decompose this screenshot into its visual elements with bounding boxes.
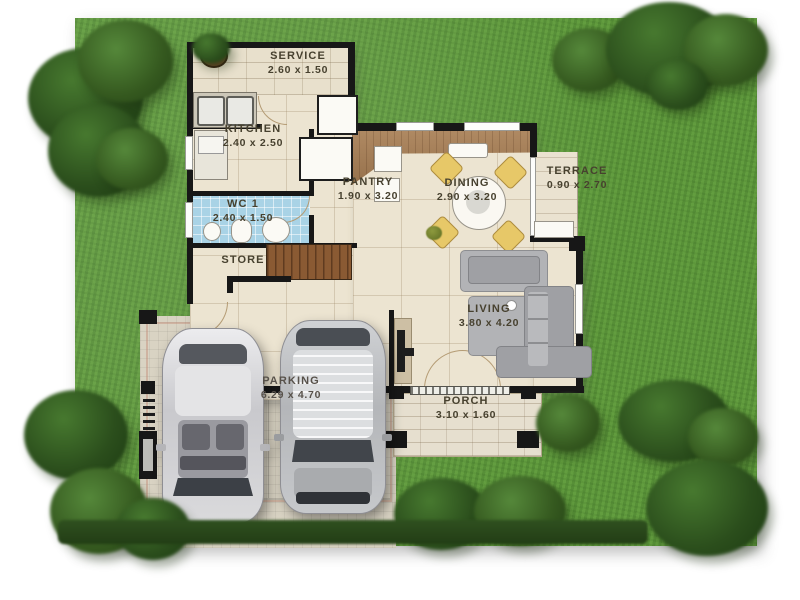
label-parking: PARKING6.29 x 4.70	[261, 375, 321, 402]
gate-column-c-panel	[143, 439, 153, 471]
potted-plant	[192, 33, 230, 63]
room-dims: 2.60 x 1.50	[268, 64, 328, 77]
tree	[96, 128, 168, 190]
porch-sliding-door	[410, 386, 510, 395]
gate-column-a	[139, 310, 157, 324]
car-mirror-left	[156, 444, 166, 451]
label-dining: DINING2.90 x 3.20	[437, 177, 497, 204]
window-kitchen	[185, 136, 193, 170]
label-terrace: TERRACE0.90 x 2.70	[547, 165, 608, 192]
tree	[648, 60, 708, 110]
tv-screen	[397, 330, 405, 372]
tree	[24, 390, 128, 480]
label-living: LIVING3.80 x 4.20	[459, 303, 519, 330]
wall-dining-terrace	[530, 123, 537, 157]
label-pantry: PANTRY1.90 x 3.20	[338, 176, 398, 203]
tv-mount	[405, 348, 414, 356]
room-name: PANTRY	[343, 176, 394, 188]
room-dims: 0.90 x 2.70	[547, 179, 608, 192]
car-dashboard	[180, 456, 246, 470]
label-service: SERVICE2.60 x 1.50	[268, 50, 328, 77]
label-kitchen: KITCHEN2.40 x 2.50	[223, 123, 283, 150]
suv-mirror-right	[382, 434, 392, 441]
floor-plan-image: SERVICE2.60 x 1.50 KITCHEN2.40 x 2.50 PA…	[0, 0, 800, 600]
room-name: TERRACE	[547, 165, 608, 177]
room-name: PORCH	[443, 395, 488, 407]
silver-car	[162, 328, 264, 524]
suv-windshield	[292, 440, 374, 462]
room-dims: 2.40 x 1.50	[213, 212, 273, 225]
room-dims: 1.90 x 3.20	[338, 190, 398, 203]
hedge	[58, 520, 648, 544]
car-windshield	[173, 478, 253, 496]
gate-slats	[143, 398, 155, 430]
pantry-shelf-1	[374, 146, 402, 172]
wall-living-right-a	[576, 242, 583, 286]
suv-grille	[296, 492, 370, 504]
room-name: SERVICE	[270, 50, 326, 62]
terrace-bench	[534, 221, 574, 238]
window-wc	[185, 202, 193, 238]
room-dims: 3.80 x 4.20	[459, 317, 519, 330]
cabinet-box-1	[317, 95, 358, 135]
room-dims: 6.29 x 4.70	[261, 389, 321, 402]
porch-column-br	[517, 431, 539, 448]
porch-column-tr	[521, 388, 536, 399]
staircase	[266, 244, 352, 280]
label-wc1: WC 12.40 x 1.50	[213, 198, 273, 225]
room-name: PARKING	[262, 375, 320, 387]
cabinet-box-2	[299, 137, 353, 181]
room-name: LIVING	[467, 303, 510, 315]
window-living-right	[575, 284, 583, 334]
loveseat-cushion	[468, 256, 540, 284]
room-name: WC 1	[227, 198, 259, 210]
suv-rear-window	[296, 328, 370, 346]
wall-left-store-a	[187, 248, 193, 304]
tree	[536, 394, 600, 452]
stove-top	[198, 136, 224, 154]
car-seat-right	[216, 424, 244, 450]
room-name: STORE	[221, 254, 264, 266]
car-seat-left	[182, 424, 210, 450]
dining-chair	[491, 219, 526, 254]
room-name: KITCHEN	[225, 123, 282, 135]
room-dims: 2.90 x 3.20	[437, 191, 497, 204]
room-dims: 2.40 x 2.50	[223, 137, 283, 150]
gray-suv	[280, 320, 386, 514]
suv-mirror-left	[274, 434, 284, 441]
label-store: STORE	[221, 254, 264, 268]
tree	[78, 20, 173, 102]
stair-rail-v	[227, 276, 233, 293]
label-porch: PORCH3.10 x 1.60	[436, 395, 496, 422]
porch-column-tl	[389, 388, 404, 399]
small-plant	[426, 226, 442, 240]
window-dining-top	[464, 122, 520, 131]
car-mirror-right	[260, 444, 270, 451]
stair-rail-h	[227, 276, 291, 282]
car-roof	[175, 366, 251, 416]
car-rear-window	[179, 344, 247, 364]
room-name: DINING	[444, 177, 489, 189]
room-dims: 3.10 x 1.60	[436, 409, 496, 422]
kitchen-sink-1	[197, 96, 225, 126]
tree	[646, 460, 768, 556]
window-pantry-top	[396, 122, 434, 131]
kitchen-sink-2	[226, 96, 254, 126]
tree	[688, 408, 758, 466]
gate-column-b	[141, 381, 155, 394]
sofa-cushions	[528, 292, 548, 366]
